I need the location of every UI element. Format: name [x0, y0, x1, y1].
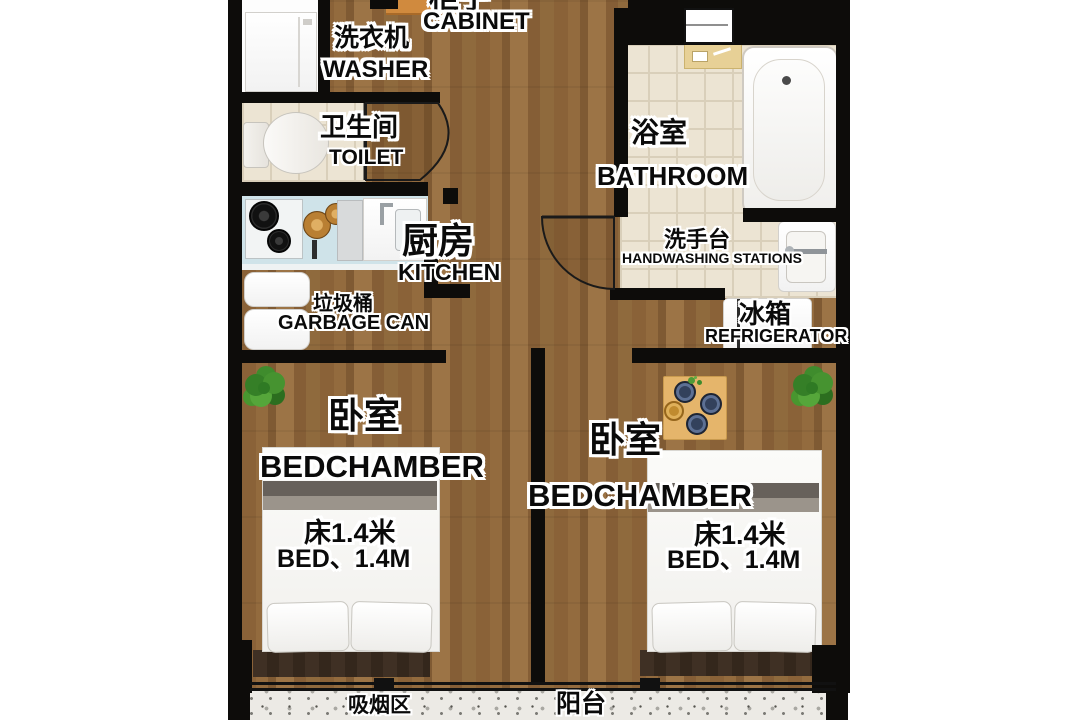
label-balcony: 阳台: [556, 692, 606, 717]
label-toilet-zh: 卫生间: [320, 114, 398, 140]
label-toilet-en: TOILET: [329, 147, 403, 168]
label-bed-left-en: BED、1.4M: [277, 547, 410, 572]
label-bedroom-left-zh: 卧室: [328, 398, 400, 434]
label-handwashing-en: HANDWASHING STATIONS: [622, 251, 802, 265]
floor-plan: 柜子 CABINET 洗衣机 WASHER 卫生间 TOILET 浴室 BATH…: [0, 0, 1080, 720]
label-bed-right-zh: 床1.4米: [694, 522, 786, 549]
label-garbage-en: GARBAGE CAN: [278, 313, 429, 333]
label-bedroom-left-en: BEDCHAMBER: [260, 451, 484, 482]
label-bathroom-zh: 浴室: [631, 119, 687, 147]
door-swings: [0, 0, 1080, 720]
label-washer-en: WASHER: [323, 58, 428, 82]
label-bathroom-en: BATHROOM: [597, 163, 748, 189]
label-kitchen-zh: 厨房: [402, 223, 474, 259]
label-garbage-zh: 垃圾桶: [313, 294, 373, 314]
label-smoking-area: 吸烟区: [348, 695, 411, 716]
label-refrigerator-en: REFRIGERATOR: [705, 327, 847, 345]
label-handwashing-zh: 洗手台: [664, 229, 730, 251]
label-bedroom-right-en: BEDCHAMBER: [528, 480, 752, 511]
label-kitchen-en: KITCHEN: [398, 261, 500, 284]
label-bed-right-en: BED、1.4M: [667, 548, 800, 573]
label-cabinet-en: CABINET: [423, 10, 530, 34]
label-refrigerator-zh: 冰箱: [739, 301, 791, 327]
door-swing-bathroom: [542, 217, 614, 289]
label-bedroom-right-zh: 卧室: [589, 422, 661, 458]
label-bed-left-zh: 床1.4米: [304, 520, 396, 547]
label-washer-zh: 洗衣机: [334, 26, 409, 51]
